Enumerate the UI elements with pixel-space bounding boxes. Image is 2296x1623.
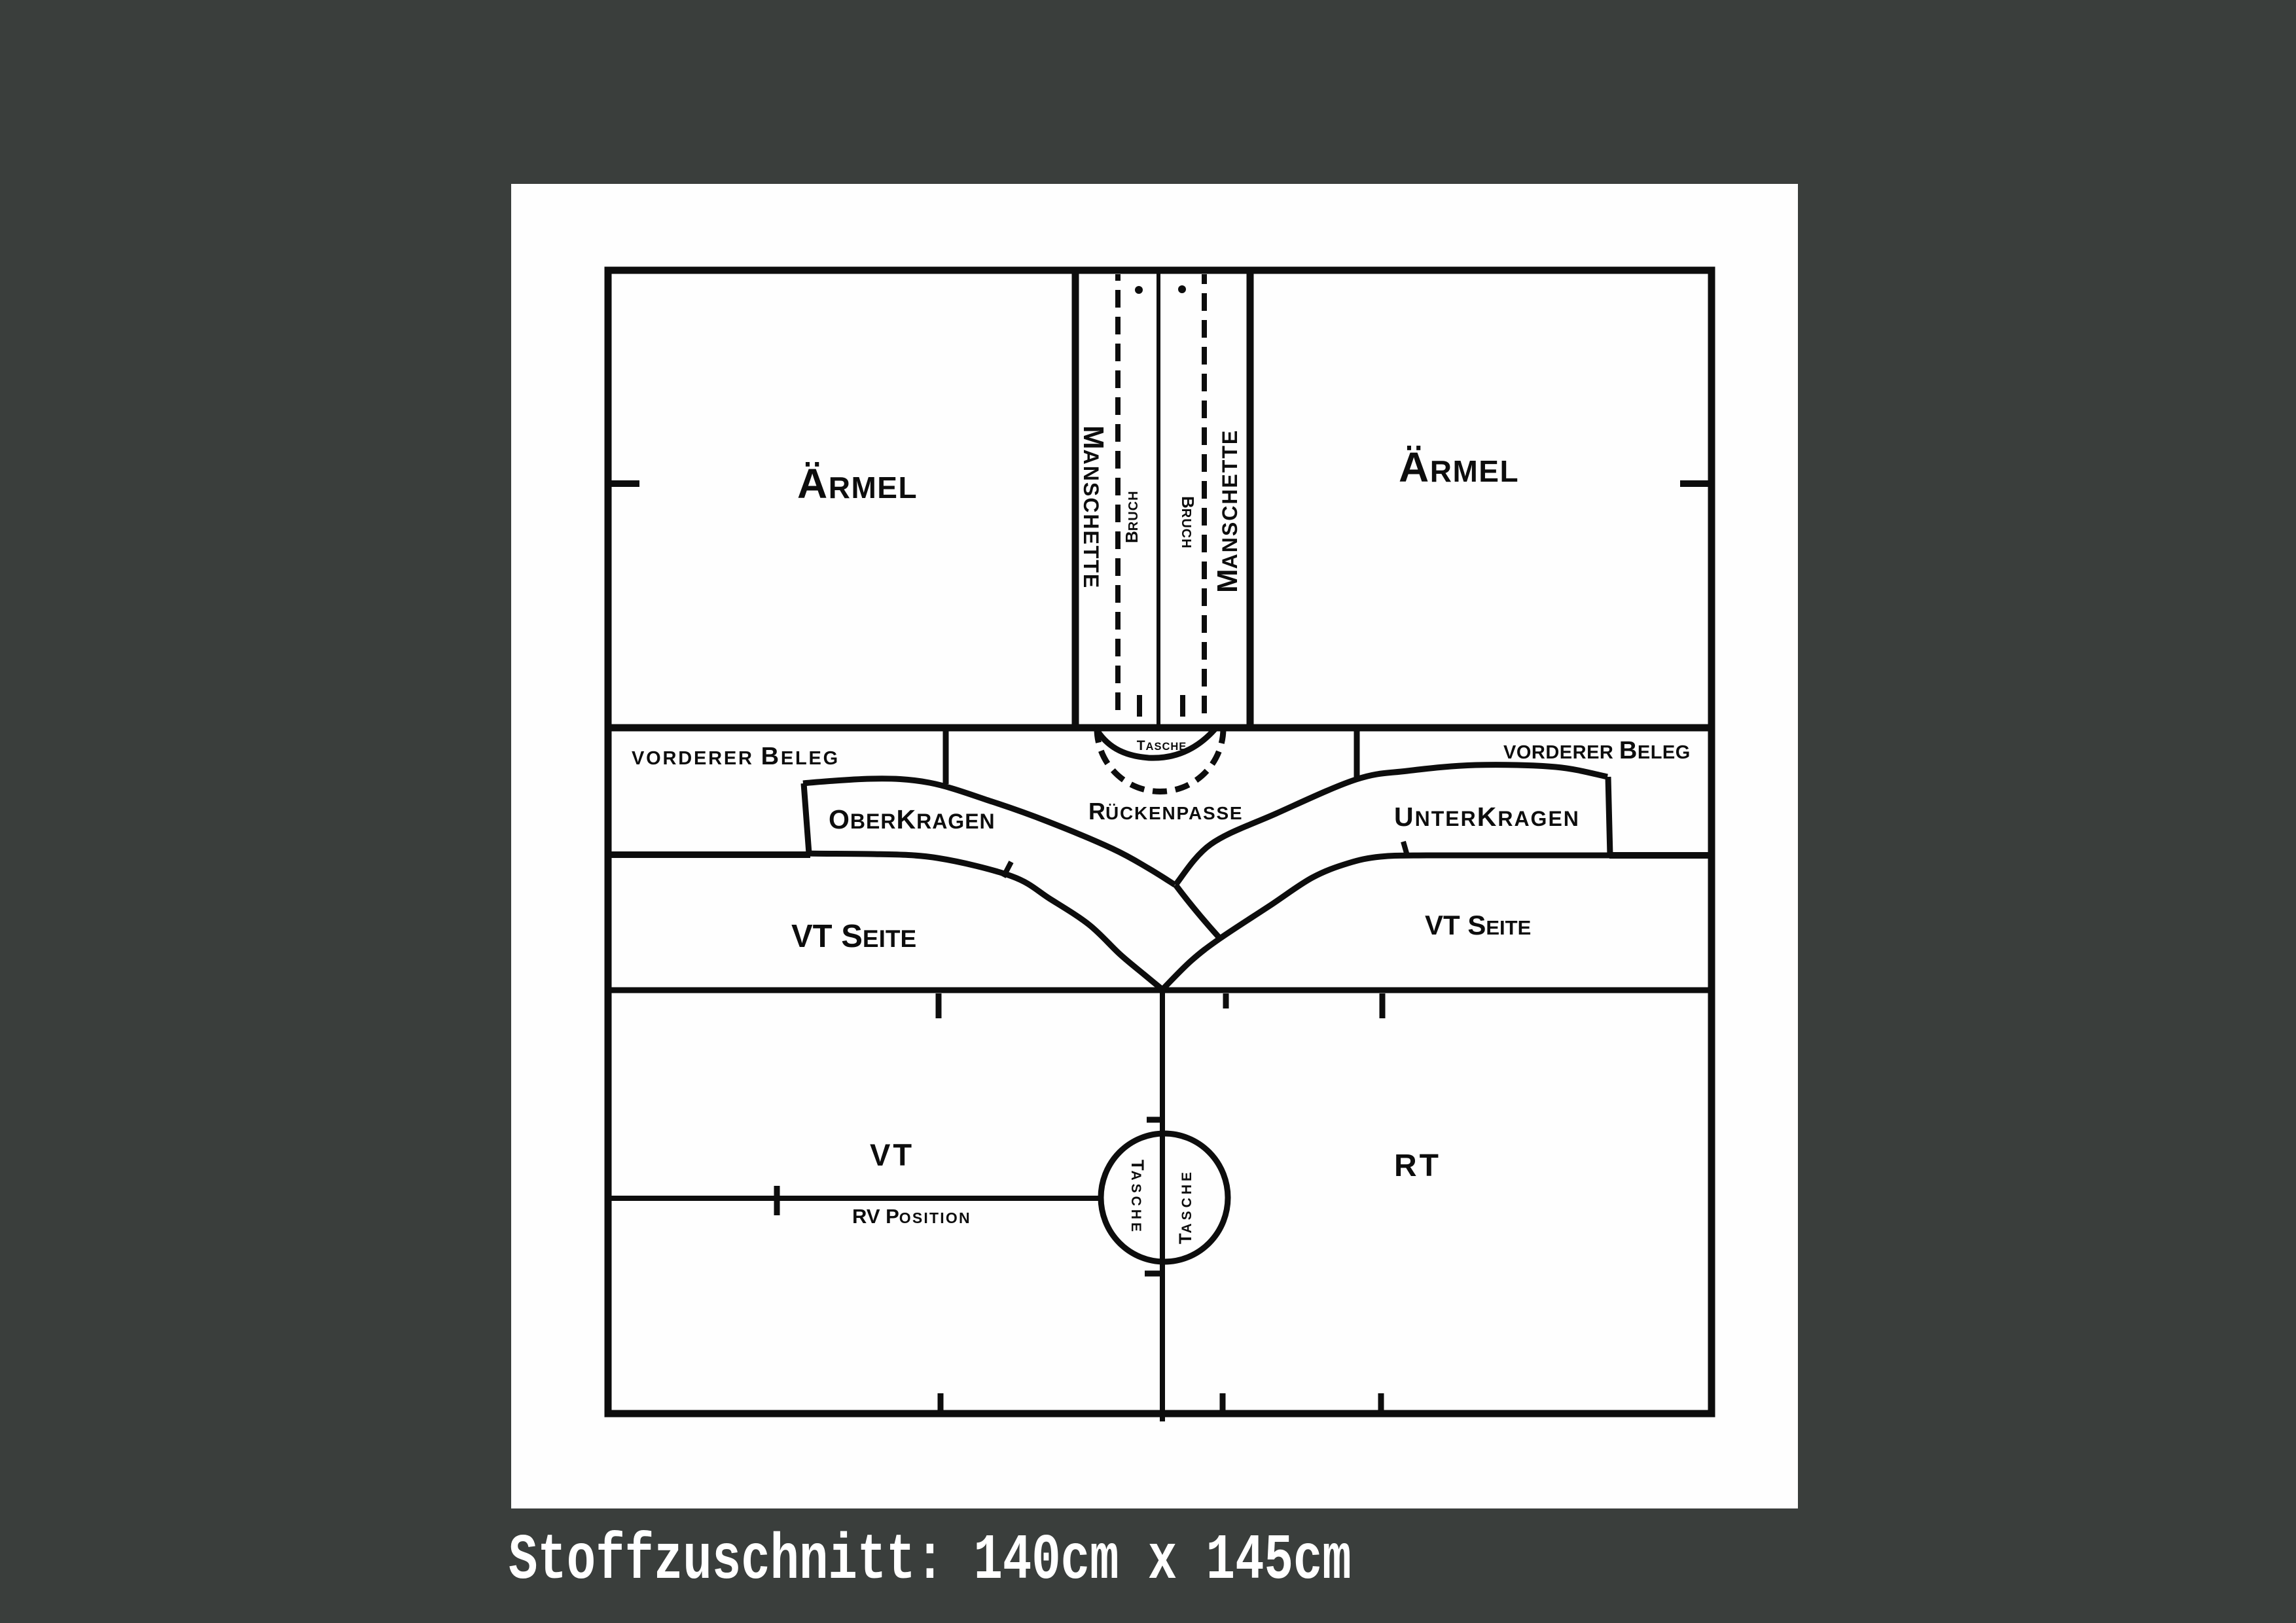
svg-text:RT: RT — [1394, 1149, 1441, 1183]
svg-text:VT: VT — [870, 1137, 914, 1172]
svg-text:TASCHE: TASCHE — [1137, 738, 1187, 753]
svg-text:Stoffzuschnitt: 140cm x 145cm: Stoffzuschnitt: 140cm x 145cm — [509, 1525, 1352, 1598]
